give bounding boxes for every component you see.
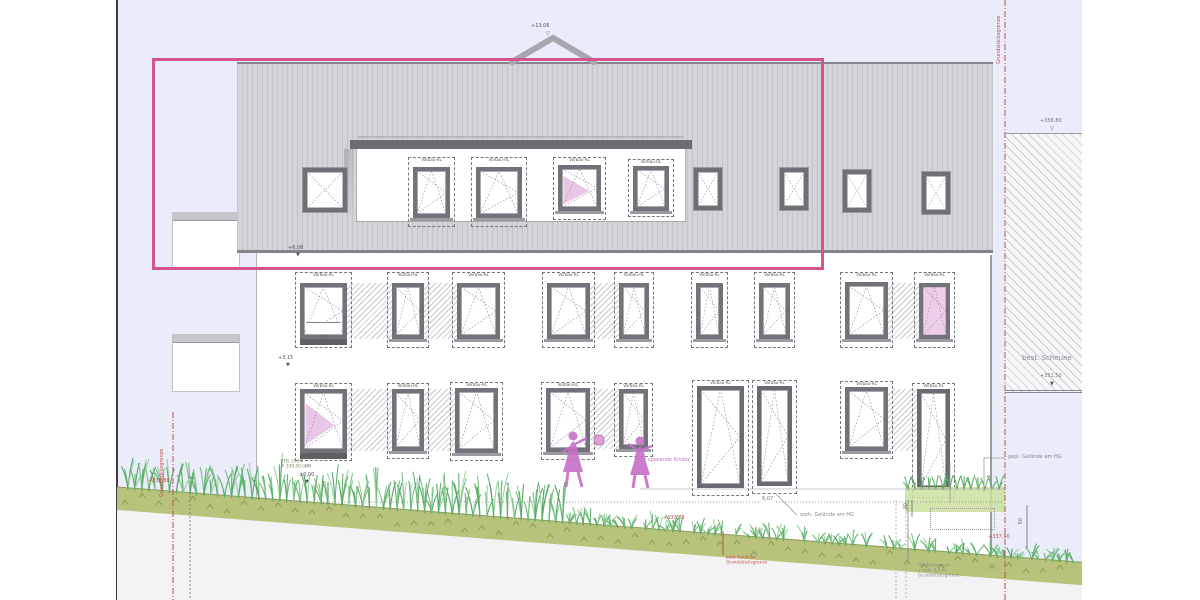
level-marker-icon: ▼: [1050, 381, 1054, 387]
boundary-label-right: Grundstücksgrenze: [997, 2, 1003, 64]
barn-bottom-level: +351,50: [1040, 374, 1062, 380]
dimension-label: 30: [904, 503, 910, 509]
boundary-label-left: Grundstücksgrenze: [160, 415, 166, 497]
ffl-annotation: EFB ±0,00 ≙ 339,50 üNN: [281, 460, 317, 471]
leader-line: [984, 458, 1005, 492]
level-marker-icon: ▽: [546, 31, 550, 37]
grade-elevation-mid: +337,85: [663, 516, 685, 522]
ridge-level-annotation: +13,06: [531, 24, 550, 30]
level-marker-icon: ▽: [1050, 126, 1054, 132]
kids-note: spielende Kinder: [648, 458, 690, 464]
retaining-wall-note: OK Stützmauer + evtl. 0,4 m Grundstücksg…: [918, 564, 967, 579]
leader-line: [775, 493, 797, 515]
level-marker-icon: ▼: [305, 479, 309, 485]
eaves-level-annotation: +6,08: [288, 246, 303, 252]
level-marker-icon: ▼: [286, 362, 290, 368]
grade-elevation-right: +337,90: [988, 535, 1010, 541]
boundary-note: best. bauliche Grundstücksgrenze: [726, 556, 775, 567]
existing-grade-note: vorh. Gelände am HG: [800, 513, 854, 519]
planned-grade-note: gepl. Gelände am HG: [1008, 455, 1062, 461]
elevation-drawing: Vorbau-RLVorbau-RLVorbau-RLVorbau-RLVorb…: [0, 0, 1200, 600]
barn-label: best. Scheune: [1022, 354, 1072, 362]
zero-level-annotation: ±0,00: [299, 473, 314, 479]
lines-layer: [0, 0, 1200, 600]
total-dimension-label: 6,07: [760, 497, 775, 503]
level-marker-icon: ▼: [296, 252, 300, 258]
upper-floor-level-annotation: +3,15: [278, 356, 293, 362]
dimension-label: 50: [1019, 518, 1025, 524]
barn-top-level: +356,80: [1040, 119, 1062, 125]
